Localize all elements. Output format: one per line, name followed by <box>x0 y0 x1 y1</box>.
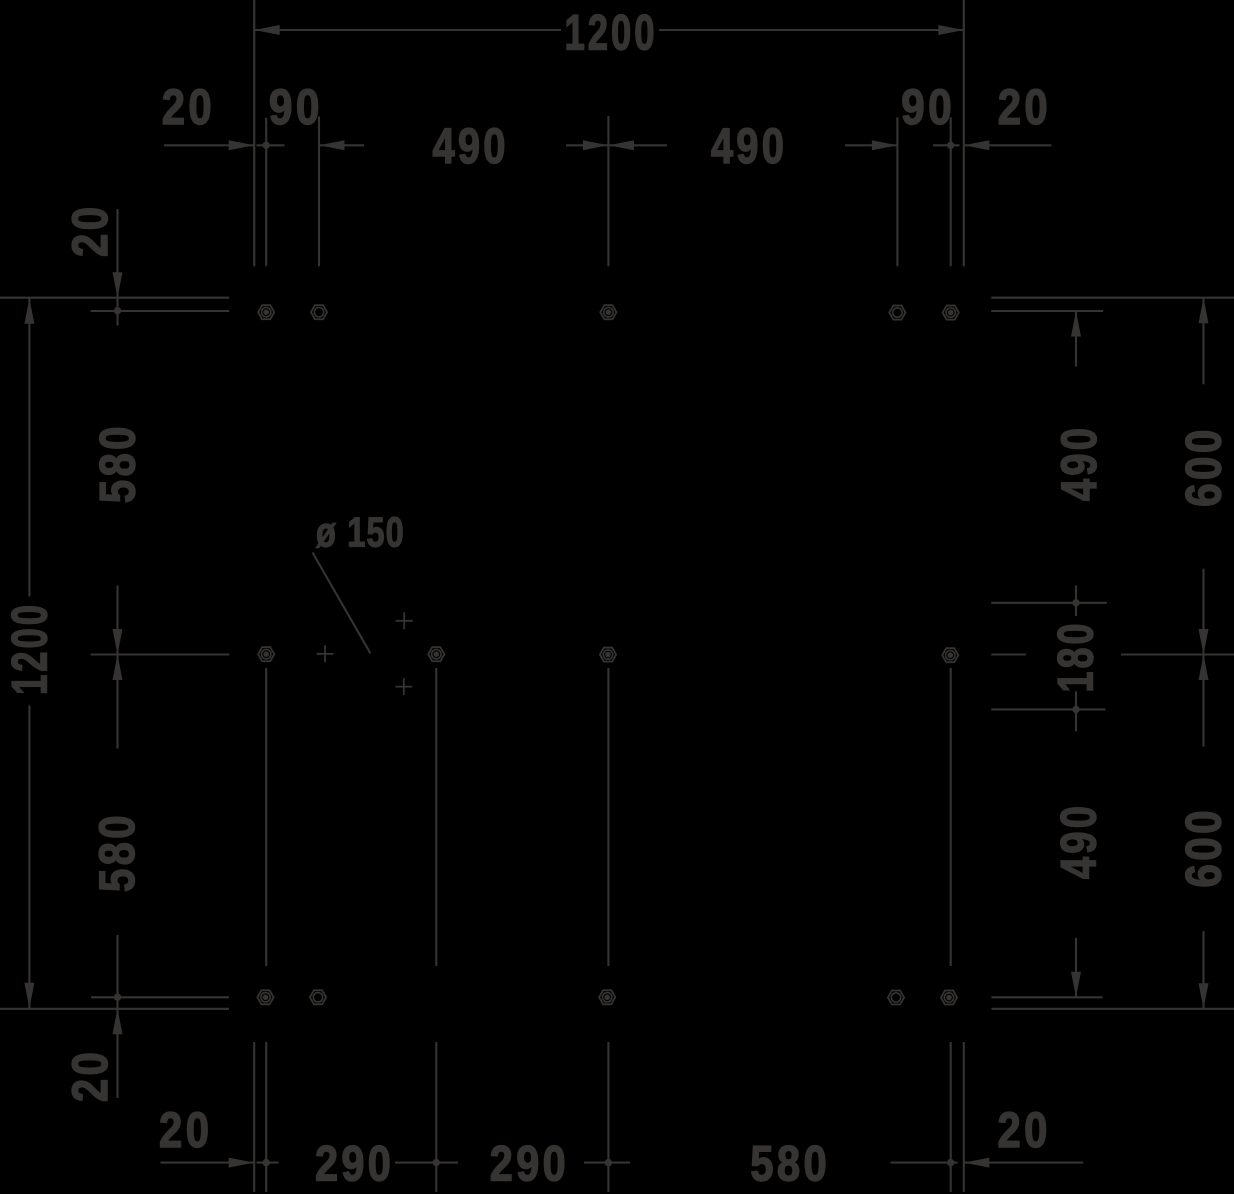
svg-text:ø 150: ø 150 <box>316 509 405 556</box>
svg-text:20: 20 <box>997 1102 1050 1158</box>
svg-text:20: 20 <box>162 79 215 135</box>
svg-text:20: 20 <box>62 204 118 257</box>
svg-text:490: 490 <box>711 118 787 174</box>
svg-text:20: 20 <box>62 1049 118 1102</box>
svg-text:490: 490 <box>1051 803 1107 879</box>
svg-text:290: 290 <box>315 1135 394 1191</box>
svg-text:20: 20 <box>998 79 1051 135</box>
svg-text:90: 90 <box>269 79 323 135</box>
svg-text:580: 580 <box>90 423 146 503</box>
svg-text:600: 600 <box>1176 426 1232 507</box>
svg-text:580: 580 <box>89 812 145 892</box>
svg-text:290: 290 <box>490 1135 569 1191</box>
svg-text:600: 600 <box>1176 807 1232 888</box>
svg-text:1200: 1200 <box>565 5 658 61</box>
svg-text:20: 20 <box>159 1102 212 1158</box>
svg-text:580: 580 <box>750 1135 830 1191</box>
svg-text:490: 490 <box>432 118 508 174</box>
svg-text:180: 180 <box>1048 621 1104 693</box>
svg-text:490: 490 <box>1051 425 1107 501</box>
svg-text:1200: 1200 <box>2 602 58 695</box>
svg-text:90: 90 <box>901 79 955 135</box>
